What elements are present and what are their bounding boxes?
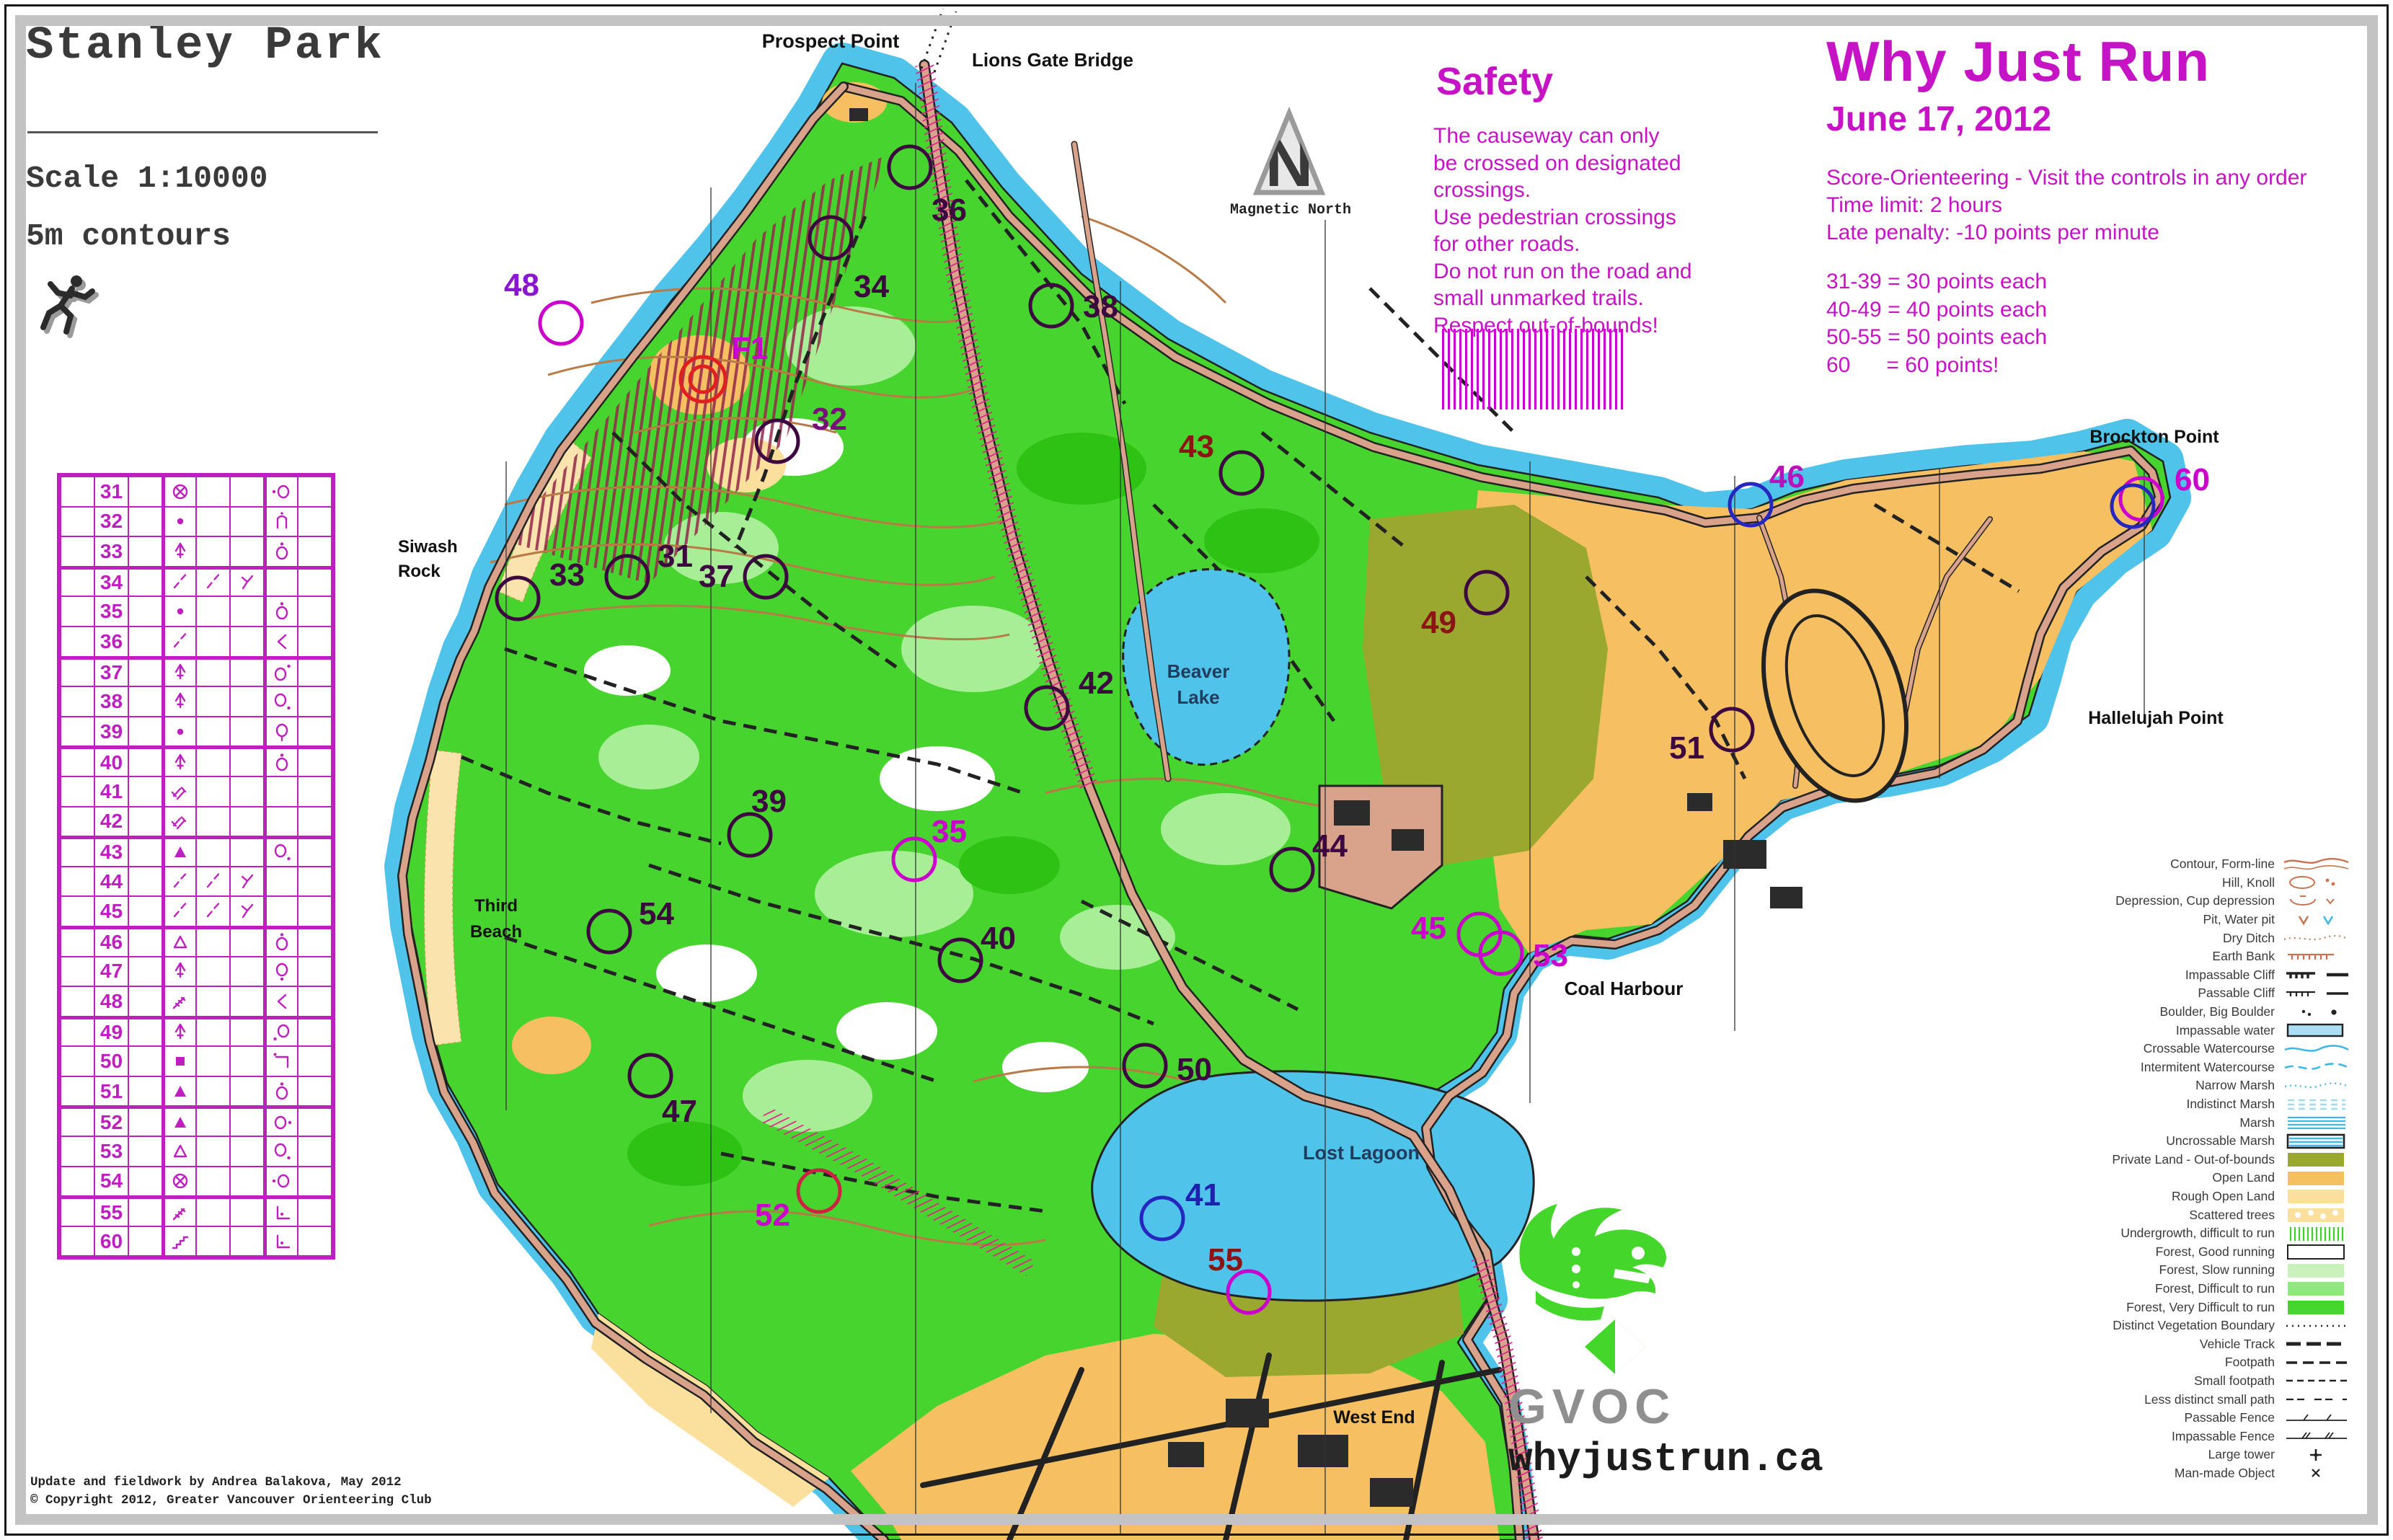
control-symbol-cell [128,1196,162,1226]
crossing-symbol-icon [169,1170,191,1192]
control-circle [540,302,582,344]
control-number: 40 [94,746,128,776]
legend-label: Boulder, Big Boulder [1896,1004,2282,1019]
control-symbol-cell [230,1106,264,1136]
control-symbol-cell [196,896,230,926]
control-number: 34 [94,567,128,597]
map-title: Stanley Park [26,20,384,72]
bend-symbol-icon [271,631,293,652]
legend-row: Passable Fence [1896,1409,2350,1428]
control-symbol-cell [298,627,332,657]
control-detail-cell [264,957,298,987]
control-symbol-cell [196,1046,230,1076]
crossable-watercourse-swatch-icon [2282,1040,2350,1058]
event-points: 31-39 = 30 points each 40-49 = 40 points… [1826,268,2047,379]
control-symbol-cell [298,477,332,507]
control-label: 37 [699,559,734,594]
control-symbol-cell [128,596,162,627]
control-symbol-cell [230,1046,264,1076]
control-symbol-cell [196,776,230,807]
whyjustrun-url: whyjustrun.ca [1508,1436,1823,1482]
control-label: 42 [1079,665,1114,701]
control-symbol-cell [128,536,162,567]
control-label: 41 [1185,1177,1221,1213]
control-number: 53 [94,1136,128,1167]
control-symbol-cell [162,686,196,717]
control-symbol-cell [61,926,94,957]
path-symbol-icon [203,871,224,893]
tree-symbol-icon [169,541,191,562]
control-detail-cell [264,926,298,957]
control-symbol-cell [162,986,196,1017]
square-symbol-icon [169,1050,191,1072]
legend-label: Forest, Slow running [1896,1262,2282,1278]
control-detail-cell [264,1226,298,1257]
control-symbol-cell [162,746,196,776]
safety-heading: Safety [1436,59,1553,104]
control-symbol-cell [196,986,230,1017]
control-number: 47 [94,957,128,987]
control-symbol-cell [230,867,264,897]
control-detail-cell [264,867,298,897]
control-symbol-cell [230,1226,264,1257]
control-symbol-cell [61,776,94,807]
control-label: 50 [1177,1052,1212,1087]
legend-label: Indistinct Marsh [1896,1097,2282,1112]
control-label: 32 [812,402,847,437]
legend-label: Impassable Cliff [1896,968,2282,983]
legend-row: Crossable Watercourse [1896,1040,2350,1058]
legend-row: Contour, Form-line [1896,855,2350,874]
control-detail-cell [264,807,298,837]
control-symbol-cell [196,657,230,687]
control-symbol-cell [128,627,162,657]
control-detail-cell [264,596,298,627]
passable-cliff-swatch-icon [2282,985,2350,1002]
control-label: 43 [1179,429,1214,464]
control-symbol-cell [230,596,264,627]
control-symbol-cell [162,1167,196,1197]
control-symbol-cell [162,477,196,507]
place-label: Siwash [398,537,458,557]
crossing2-symbol-icon [169,810,191,832]
map-credits: Update and fieldwork by Andrea Balakova,… [30,1474,432,1510]
control-symbol-cell [196,1136,230,1167]
control-symbol-cell [61,1167,94,1197]
tri-filled-symbol-icon [169,1081,191,1102]
legend-label: Scattered trees [1896,1208,2282,1223]
impassable-water-swatch-icon [2282,1022,2350,1039]
undergrowth-swatch-icon [2282,1225,2350,1242]
control-symbol-cell [162,507,196,537]
control-number: 52 [94,1106,128,1136]
path-symbol-icon [203,572,224,593]
gvoc-wordmark: GVOC [1508,1379,1676,1435]
control-symbol-cell [61,1136,94,1167]
control-symbol-cell [61,567,94,597]
legend-row: Impassable Cliff [1896,966,2350,985]
control-number: 35 [94,596,128,627]
control-symbol-cell [298,776,332,807]
control-symbol-cell [162,807,196,837]
magnetic-north-icon: N [1257,113,1322,200]
control-detail-cell [264,1017,298,1047]
control-symbol-cell [162,627,196,657]
pos-sw-symbol-icon [271,1022,293,1043]
control-label: 38 [1083,289,1118,324]
control-symbol-cell [162,657,196,687]
control-label: 45 [1411,911,1446,946]
control-symbol-cell [162,836,196,867]
legend-label: Narrow Marsh [1896,1078,2282,1093]
control-symbol-cell [298,717,332,747]
legend-row: Boulder, Big Boulder [1896,1003,2350,1022]
control-symbol-cell [230,926,264,957]
control-symbol-cell [230,986,264,1017]
path-symbol-icon [169,900,191,922]
place-label: Brockton Point [2089,427,2219,447]
control-symbol-cell [298,686,332,717]
control-symbol-cell [128,657,162,687]
control-symbol-cell [298,896,332,926]
legend-row: Rough Open Land [1896,1187,2350,1206]
control-symbol-cell [61,536,94,567]
control-symbol-cell [128,926,162,957]
hill-swatch-icon [2282,874,2350,891]
tri-filled-symbol-icon [169,841,191,863]
pos-n-symbol-icon [271,931,293,953]
control-symbol-cell [128,1136,162,1167]
control-number: 48 [94,986,128,1017]
control-number: 46 [94,926,128,957]
control-symbol-cell [61,1196,94,1226]
legend-label: Footpath [1896,1355,2282,1370]
marsh-swatch-icon [2282,1114,2350,1131]
control-detail-cell [264,746,298,776]
control-symbol-cell [128,986,162,1017]
impassable-fence-swatch-icon [2282,1428,2350,1445]
control-symbol-cell [230,657,264,687]
private-land-swatch-icon [2282,1151,2350,1168]
open-land-swatch-icon [2282,1169,2350,1187]
foot-s-symbol-icon [271,721,293,743]
boulder-symbol-icon [169,510,191,532]
control-symbol-cell [196,926,230,957]
place-label: Rock [398,562,441,581]
control-symbol-cell [61,1226,94,1257]
legend-row: Less distinct small path [1896,1390,2350,1409]
pos-w-symbol-icon [271,1170,293,1192]
control-symbol-cell [196,507,230,537]
legend-label: Forest, Very Difficult to run [1896,1300,2282,1315]
control-symbol-cell [298,1046,332,1076]
control-symbol-cell [61,746,94,776]
legend-row: Depression, Cup depression [1896,892,2350,911]
narrow-marsh-swatch-icon [2282,1077,2350,1094]
control-symbol-cell [128,1106,162,1136]
legend-label: Passable Fence [1896,1410,2282,1425]
control-label: 49 [1421,605,1456,640]
legend-row: Forest, Difficult to run [1896,1280,2350,1298]
control-symbol-cell [162,1106,196,1136]
control-symbol-cell [230,776,264,807]
control-symbol-cell [162,957,196,987]
control-detail-cell [264,507,298,537]
legend-label: Open Land [1896,1170,2282,1185]
bend-symbol-icon [271,991,293,1012]
control-symbol-cell [196,1017,230,1047]
control-symbol-cell [61,1017,94,1047]
control-label: 48 [504,267,539,303]
control-detail-cell [264,567,298,597]
indistinct-marsh-swatch-icon [2282,1096,2350,1113]
control-symbol-cell [230,1136,264,1167]
control-symbol-cell [128,717,162,747]
control-48: 48 [504,267,582,344]
tree-symbol-icon [169,960,191,982]
legend-label: Earth Bank [1896,949,2282,964]
orienteering-map-sheet: N Prospect PointLions Gate BridgeSiwashR… [0,0,2393,1540]
uncrossable-marsh-swatch-icon [2282,1133,2350,1150]
passable-fence-swatch-icon [2282,1410,2350,1427]
tree-symbol-icon [169,662,191,683]
control-number: 31 [94,477,128,507]
control-symbol-cell [61,867,94,897]
event-rules: Score-Orienteering - Visit the controls … [1826,164,2306,247]
control-symbol-cell [61,477,94,507]
scattered-trees-swatch-icon [2282,1206,2350,1223]
control-label: 47 [662,1094,697,1129]
control-symbol-cell [230,807,264,837]
control-label: 44 [1312,828,1348,864]
control-label: 54 [639,896,674,931]
control-symbol-cell [128,867,162,897]
control-number: 43 [94,836,128,867]
forest-slow-swatch-icon [2282,1262,2350,1279]
tri-filled-symbol-icon [169,1112,191,1133]
pit-swatch-icon [2282,911,2350,929]
control-label: 34 [854,269,889,304]
control-symbol-cell [61,836,94,867]
control-symbol-cell [298,1106,332,1136]
control-detail-cell [264,986,298,1017]
control-symbol-cell [128,1076,162,1107]
legend-row: Indistinct Marsh [1896,1095,2350,1114]
pos-w-symbol-icon [271,481,293,503]
control-symbol-cell [128,957,162,987]
control-symbol-cell [298,1076,332,1107]
control-number: 32 [94,507,128,537]
forest-difficult-swatch-icon [2282,1280,2350,1297]
control-detail-cell [264,717,298,747]
legend-label: Contour, Form-line [1896,857,2282,872]
control-symbol-cell [230,1017,264,1047]
legend-row: Intermitent Watercourse [1896,1058,2350,1077]
contour-swatch-icon [2282,856,2350,873]
control-symbol-cell [128,776,162,807]
place-label: Third [474,896,518,916]
control-detail-cell [264,1046,298,1076]
control-symbol-cell [298,926,332,957]
control-symbol-cell [196,807,230,837]
control-detail-cell [264,477,298,507]
ditch-swatch-icon [2282,929,2350,947]
control-symbol-cell [128,1017,162,1047]
boulder-swatch-icon [2282,1004,2350,1021]
tri-open-symbol-icon [169,1141,191,1162]
place-label: Lake [1177,686,1219,708]
control-symbol-cell [196,717,230,747]
control-symbol-cell [230,746,264,776]
control-symbol-cell [298,1167,332,1197]
legend-label: Distinct Vegetation Boundary [1896,1318,2282,1333]
tree-symbol-icon [169,1022,191,1043]
control-symbol-cell [128,1167,162,1197]
control-symbol-cell [298,986,332,1017]
control-symbol-cell [162,717,196,747]
control-symbol-cell [61,686,94,717]
control-symbol-cell [298,957,332,987]
control-symbol-cell [162,926,196,957]
pos-se-symbol-icon [271,841,293,863]
legend-row: Man-made Object [1896,1464,2350,1483]
legend-row: Scattered trees [1896,1205,2350,1224]
control-symbol-cell [230,686,264,717]
control-detail-cell [264,1106,298,1136]
control-number: 39 [94,717,128,747]
pos-s-symbol-icon [271,960,293,982]
control-symbol-cell [196,1196,230,1226]
control-number: 51 [94,1076,128,1107]
legend-label: Rough Open Land [1896,1189,2282,1204]
control-detail-cell [264,1076,298,1107]
legend-row: Passable Cliff [1896,984,2350,1003]
legend-label: Large tower [1896,1447,2282,1462]
legend-row: Vehicle Track [1896,1335,2350,1353]
control-detail-cell [264,1136,298,1167]
legend-label: Less distinct small path [1896,1392,2282,1407]
legend-label: Hill, Knoll [1896,875,2282,890]
control-symbol-cell [61,1046,94,1076]
legend-label: Forest, Difficult to run [1896,1281,2282,1296]
place-label: Beach [470,922,522,942]
corner-inside-symbol-icon [271,1050,293,1072]
control-symbol-cell [162,567,196,597]
manmade-object-swatch-icon [2282,1464,2350,1482]
control-number: 41 [94,776,128,807]
pos-se-symbol-icon [271,1141,293,1162]
control-number: 38 [94,686,128,717]
corner-outside-symbol-icon [271,1202,293,1223]
safety-text: The causeway can only be crossed on desi… [1433,123,1692,339]
impassable-cliff-swatch-icon [2282,966,2350,983]
bank-symbol-icon [169,1202,191,1223]
legend-label: Forest, Good running [1896,1244,2282,1260]
legend-row: Hill, Knoll [1896,874,2350,893]
legend-label: Passable Cliff [1896,986,2282,1001]
control-symbol-cell [162,867,196,897]
control-symbol-cell [162,776,196,807]
legend-label: Man-made Object [1896,1466,2282,1481]
legend-row: Open Land [1896,1169,2350,1187]
tri-open-symbol-icon [169,931,191,953]
control-symbol-cell [298,867,332,897]
control-detail-cell [264,896,298,926]
map-scale-and-contours: Scale 1:100005m contours [26,150,267,265]
control-label: 31 [658,539,693,574]
control-symbol-cell [128,477,162,507]
control-symbol-cell [162,1226,196,1257]
control-symbol-cell [230,957,264,987]
control-symbol-cell [128,1226,162,1257]
bank-symbol-icon [169,991,191,1012]
control-symbol-cell [298,1136,332,1167]
control-symbol-cell [196,1167,230,1197]
control-symbol-cell [61,507,94,537]
legend-label: Small footpath [1896,1373,2282,1389]
legend-label: Marsh [1896,1115,2282,1130]
boulder-symbol-icon [169,721,191,743]
control-symbol-cell [162,1076,196,1107]
control-label: 46 [1769,459,1805,495]
control-symbol-cell [298,596,332,627]
control-symbol-cell [196,746,230,776]
magnetic-north-label: Magnetic North [1218,202,1363,218]
control-symbol-cell [196,957,230,987]
junction-symbol-icon [236,900,258,922]
control-symbol-cell [196,536,230,567]
legend-label: Intermitent Watercourse [1896,1060,2282,1075]
legend-row: Large tower [1896,1446,2350,1464]
pos-n-symbol-icon [271,1081,293,1102]
control-detail-cell [264,536,298,567]
control-symbol-cell [298,746,332,776]
control-symbol-cell [196,1076,230,1107]
pos-ne-symbol-icon [271,662,293,683]
control-symbol-cell [230,507,264,537]
control-symbol-cell [128,896,162,926]
control-symbol-cell [61,957,94,987]
tree-symbol-icon [169,691,191,712]
control-symbol-cell [128,686,162,717]
earthbank-swatch-icon [2282,948,2350,965]
control-detail-cell [264,1196,298,1226]
title-underline [27,131,378,133]
control-number: 54 [94,1167,128,1197]
legend-label: Impassable Fence [1896,1429,2282,1444]
control-label: 51 [1669,730,1704,766]
control-symbol-cell [196,596,230,627]
rough-open-swatch-icon [2282,1187,2350,1205]
intermittent-watercourse-swatch-icon [2282,1058,2350,1076]
control-symbol-cell [162,1017,196,1047]
control-symbol-cell [230,1076,264,1107]
legend-label: Depression, Cup depression [1896,893,2282,908]
control-symbol-cell [196,686,230,717]
control-symbol-cell [230,627,264,657]
pos-se-symbol-icon [271,691,293,712]
forest-verydifficult-swatch-icon [2282,1298,2350,1316]
legend-label: Vehicle Track [1896,1337,2282,1352]
legend-row: Distinct Vegetation Boundary [1896,1316,2350,1335]
control-symbol-cell [162,596,196,627]
legend-label: Private Land - Out-of-bounds [1896,1152,2282,1167]
legend-row: Uncrossable Marsh [1896,1132,2350,1151]
place-label: Lions Gate Bridge [972,49,1133,71]
control-number: 60 [94,1226,128,1257]
less-distinct-swatch-icon [2282,1391,2350,1408]
tree-symbol-icon [169,752,191,774]
